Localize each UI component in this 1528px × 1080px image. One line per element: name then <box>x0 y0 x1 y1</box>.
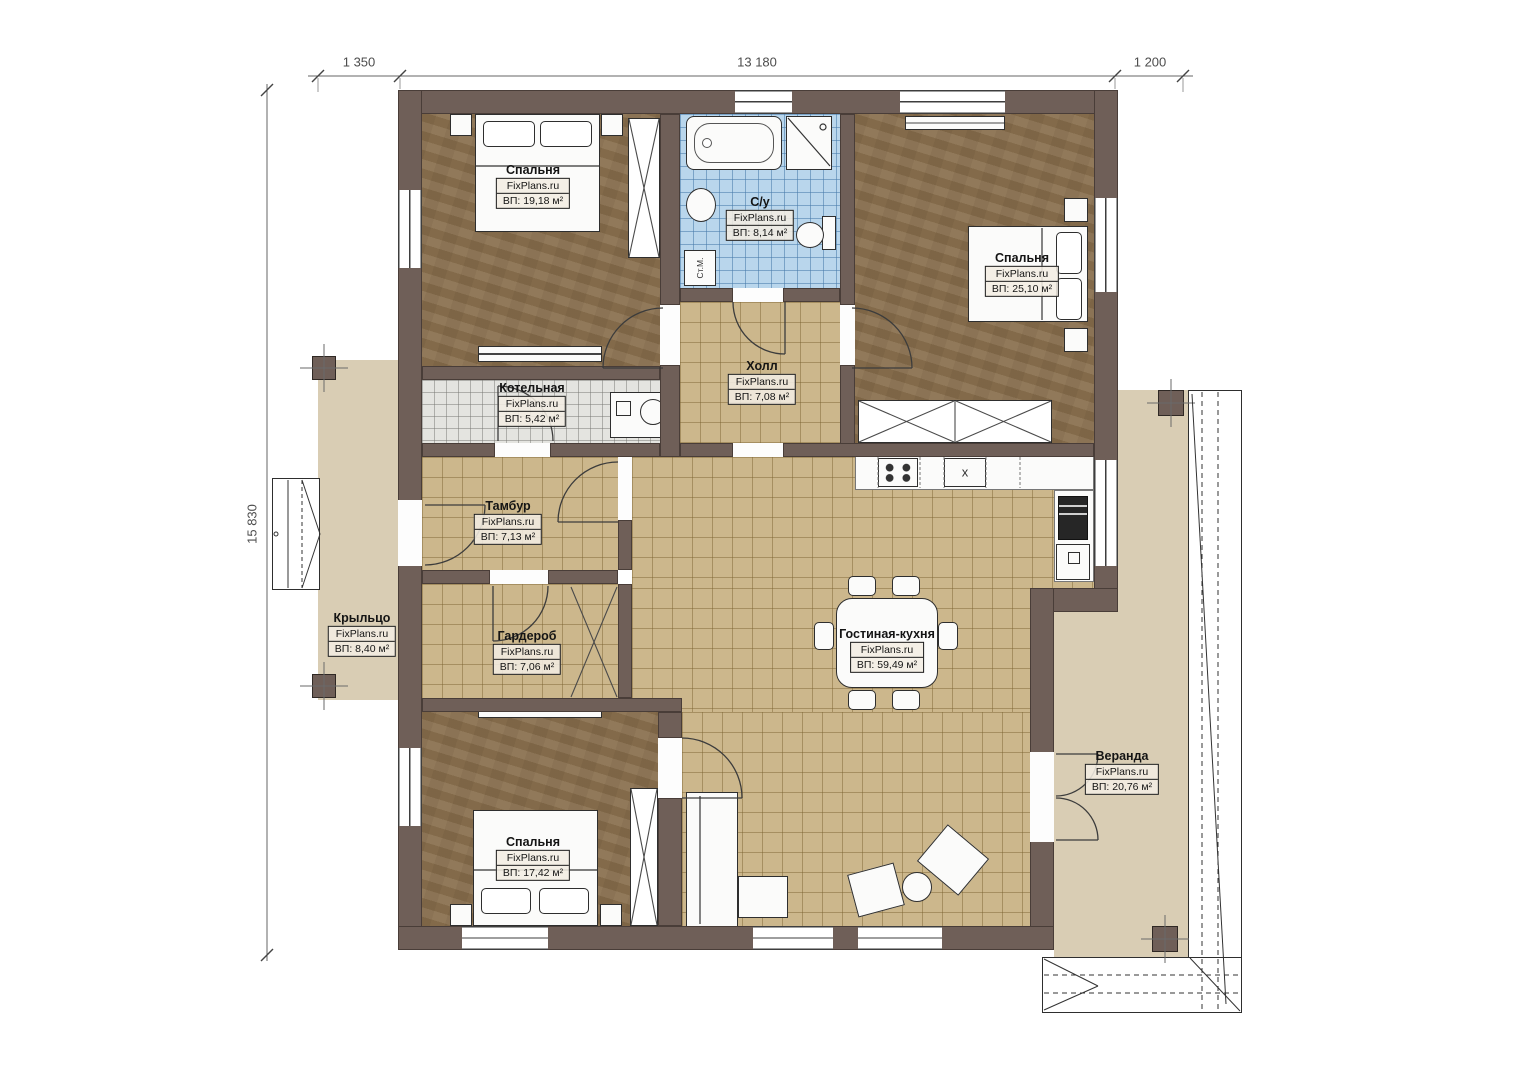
window <box>1094 198 1118 292</box>
veranda-floor <box>1118 390 1188 612</box>
room-area: ВП: 19,18 м² <box>497 194 569 208</box>
wall-interior <box>783 443 1094 457</box>
room-area: ВП: 17,42 м² <box>497 866 569 880</box>
room-info-box: FixPlans.ru ВП: 8,14 м² <box>726 210 794 241</box>
door-opening <box>658 738 682 798</box>
nightstand-icon <box>600 904 622 926</box>
sofa-chaise <box>738 876 788 918</box>
veranda-roof-edge <box>1042 957 1242 1013</box>
room-brand: FixPlans.ru <box>494 645 560 660</box>
room-info-box: FixPlans.ru ВП: 7,08 м² <box>728 374 796 405</box>
porch-post <box>312 674 336 698</box>
room-label-living-kitchen: Гостиная-кухня FixPlans.ru ВП: 59,49 м² <box>839 627 935 673</box>
sofa-icon <box>686 792 738 928</box>
room-info-box: FixPlans.ru ВП: 59,49 м² <box>850 642 924 673</box>
room-brand: FixPlans.ru <box>729 375 795 390</box>
chair-icon <box>938 622 958 650</box>
pillow-icon <box>539 888 589 914</box>
room-label-bedroom-top-left: Спальня FixPlans.ru ВП: 19,18 м² <box>496 163 570 209</box>
floor-plan: Ст.М. x <box>0 0 1528 1080</box>
room-area: ВП: 59,49 м² <box>851 658 923 672</box>
room-name: Гардероб <box>497 629 556 643</box>
wall-interior <box>660 114 680 305</box>
fridge-icon <box>1058 496 1088 540</box>
wardrobe-icon <box>630 788 658 926</box>
window <box>398 190 422 268</box>
room-brand: FixPlans.ru <box>986 267 1058 282</box>
nightstand-icon <box>601 114 623 136</box>
room-label-vestibule: Тамбур FixPlans.ru ВП: 7,13 м² <box>474 499 542 545</box>
room-area: ВП: 8,14 м² <box>727 226 793 240</box>
wall-interior <box>658 712 682 738</box>
room-area: ВП: 7,13 м² <box>475 530 541 544</box>
washing-machine-label: Ст.М. <box>695 258 705 279</box>
door-opening <box>618 460 632 520</box>
veranda-roof-edge <box>1188 390 1242 1013</box>
room-info-box: FixPlans.ru ВП: 19,18 м² <box>496 178 570 209</box>
pillow-icon <box>1056 232 1082 274</box>
chair-icon <box>892 690 920 710</box>
toilet-icon <box>796 222 824 248</box>
chair-icon <box>814 622 834 650</box>
room-brand: FixPlans.ru <box>475 515 541 530</box>
dim-top-veranda: 1 200 <box>1134 55 1167 70</box>
sink-icon <box>686 188 716 222</box>
room-area: ВП: 7,06 м² <box>494 660 560 674</box>
wall-interior <box>550 443 660 457</box>
porch-post <box>312 356 336 380</box>
room-info-box: FixPlans.ru ВП: 17,42 м² <box>496 850 570 881</box>
room-label-bedroom-bottom-left: Спальня FixPlans.ru ВП: 17,42 м² <box>496 835 570 881</box>
wall-interior <box>840 114 855 305</box>
pillow-icon <box>1056 278 1082 320</box>
room-label-boiler: Котельная FixPlans.ru ВП: 5,42 м² <box>498 381 566 427</box>
door-opening <box>490 570 548 584</box>
room-label-bathroom: С/у FixPlans.ru ВП: 8,14 м² <box>726 195 794 241</box>
stove-icon <box>878 458 918 487</box>
nightstand-icon <box>450 114 472 136</box>
dim-left-house: 15 830 <box>245 504 260 544</box>
room-name: Крыльцо <box>334 611 391 625</box>
dresser-icon <box>478 346 602 362</box>
veranda-post <box>1158 390 1184 416</box>
room-brand: FixPlans.ru <box>497 851 569 866</box>
room-name: Веранда <box>1095 749 1148 763</box>
dim-top-porch: 1 350 <box>343 55 376 70</box>
room-brand: FixPlans.ru <box>851 643 923 658</box>
dim-top-house: 13 180 <box>737 55 777 70</box>
door-opening <box>660 305 680 365</box>
room-label-porch: Крыльцо FixPlans.ru ВП: 8,40 м² <box>328 611 396 657</box>
door-opening <box>733 288 783 302</box>
chair-icon <box>892 576 920 596</box>
room-info-box: FixPlans.ru ВП: 20,76 м² <box>1085 764 1159 795</box>
room-brand: FixPlans.ru <box>329 627 395 642</box>
room-info-box: FixPlans.ru ВП: 7,06 м² <box>493 644 561 675</box>
nightstand-icon <box>1064 328 1088 352</box>
living-kitchen-floor <box>632 588 1030 712</box>
wall-interior <box>422 443 495 457</box>
chair-icon <box>848 576 876 596</box>
room-name: Холл <box>746 359 777 373</box>
toilet-tank <box>822 216 836 250</box>
window <box>753 926 833 950</box>
room-brand: FixPlans.ru <box>499 397 565 412</box>
room-area: ВП: 8,40 м² <box>329 642 395 656</box>
porch-steps <box>272 478 320 590</box>
room-name: Спальня <box>506 835 560 849</box>
wall-interior <box>783 288 840 302</box>
wall-interior <box>422 366 660 380</box>
wall-interior <box>618 520 632 570</box>
room-area: ВП: 20,76 м² <box>1086 780 1158 794</box>
wall-interior <box>660 365 680 457</box>
wall-interior <box>422 570 490 584</box>
door-opening <box>495 443 550 457</box>
pillow-icon <box>481 888 531 914</box>
room-label-bedroom-top-right: Спальня FixPlans.ru ВП: 25,10 м² <box>985 251 1059 297</box>
kitchen-sink-mark: x <box>962 465 969 480</box>
room-info-box: FixPlans.ru ВП: 7,13 м² <box>474 514 542 545</box>
room-area: ВП: 5,42 м² <box>499 412 565 426</box>
side-table-icon <box>902 872 932 902</box>
room-name: Тамбур <box>485 499 530 513</box>
wall-interior <box>618 584 632 698</box>
window <box>735 90 792 114</box>
room-name: С/у <box>750 195 769 209</box>
room-name: Гостиная-кухня <box>839 627 935 641</box>
radiator-icon <box>905 116 1005 130</box>
window <box>900 90 1005 114</box>
room-name: Спальня <box>995 251 1049 265</box>
room-name: Спальня <box>506 163 560 177</box>
room-label-veranda: Веранда FixPlans.ru ВП: 20,76 м² <box>1085 749 1159 795</box>
wall-interior <box>680 288 733 302</box>
boiler-box-icon <box>616 401 631 416</box>
nightstand-icon <box>450 904 472 926</box>
door-opening <box>733 443 783 457</box>
window <box>398 748 422 826</box>
window <box>462 926 548 950</box>
veranda-post <box>1152 926 1178 952</box>
wall-interior <box>422 698 682 712</box>
door-opening <box>840 305 855 365</box>
wardrobe-icon <box>628 118 660 258</box>
room-label-wardrobe: Гардероб FixPlans.ru ВП: 7,06 м² <box>493 629 561 675</box>
wall-interior <box>680 443 733 457</box>
nightstand-icon <box>1064 198 1088 222</box>
pillow-icon <box>483 121 535 147</box>
room-brand: FixPlans.ru <box>497 179 569 194</box>
bathtub-drain <box>702 138 712 148</box>
room-brand: FixPlans.ru <box>727 211 793 226</box>
wall-interior <box>658 798 682 926</box>
room-info-box: FixPlans.ru ВП: 25,10 м² <box>985 266 1059 297</box>
room-area: ВП: 7,08 м² <box>729 390 795 404</box>
veranda-door-opening <box>1030 752 1054 842</box>
room-area: ВП: 25,10 м² <box>986 282 1058 296</box>
shower-icon <box>786 116 832 170</box>
wall-interior <box>548 570 618 584</box>
room-info-box: FixPlans.ru ВП: 5,42 м² <box>498 396 566 427</box>
room-label-hall: Холл FixPlans.ru ВП: 7,08 м² <box>728 359 796 405</box>
window <box>1094 460 1118 566</box>
oven-door <box>1068 552 1080 564</box>
room-name: Котельная <box>499 381 564 395</box>
chair-icon <box>848 690 876 710</box>
pillow-icon <box>540 121 592 147</box>
entrance-door-opening <box>398 500 422 566</box>
room-info-box: FixPlans.ru ВП: 8,40 м² <box>328 626 396 657</box>
window <box>858 926 942 950</box>
wardrobe-icon <box>858 400 1052 443</box>
room-brand: FixPlans.ru <box>1086 765 1158 780</box>
